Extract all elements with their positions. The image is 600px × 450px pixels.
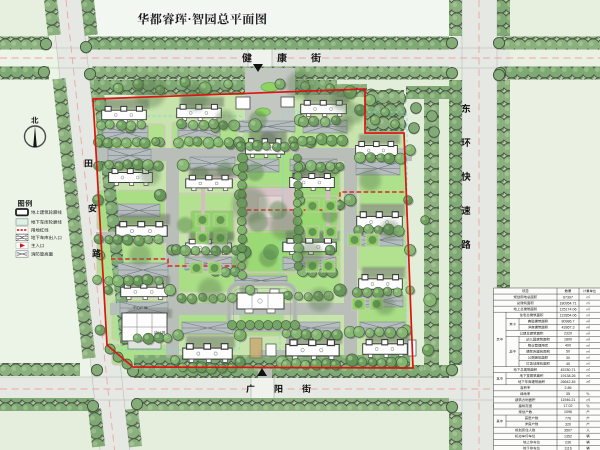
svg-text:50: 50: [566, 350, 570, 354]
svg-text:236: 236: [565, 440, 571, 444]
svg-text:67397: 67397: [563, 295, 573, 299]
svg-text:1800: 1800: [564, 338, 572, 342]
svg-text:1116: 1116: [564, 447, 571, 450]
svg-text:776: 776: [565, 416, 571, 420]
svg-text:80986.7: 80986.7: [562, 319, 575, 323]
svg-text:1096: 1096: [564, 410, 572, 414]
svg-text:35: 35: [566, 392, 570, 396]
svg-text:2.86: 2.86: [565, 386, 572, 390]
svg-text:19138.26: 19138.26: [561, 374, 576, 378]
svg-text:400: 400: [565, 344, 571, 348]
svg-text:2320: 2320: [564, 332, 572, 336]
svg-text:40: 40: [566, 362, 570, 366]
svg-text:26642.45: 26642.45: [561, 380, 576, 384]
svg-text:17.02: 17.02: [564, 404, 573, 408]
svg-text:42867.3: 42867.3: [562, 326, 575, 330]
svg-text:3507: 3507: [564, 428, 572, 432]
svg-text:1352: 1352: [564, 434, 572, 438]
svg-text:30: 30: [566, 356, 570, 360]
svg-text:180954.71: 180954.71: [560, 301, 577, 305]
svg-text:45780.71: 45780.71: [561, 368, 576, 372]
svg-text:122854.06: 122854.06: [560, 313, 577, 317]
svg-text:320: 320: [565, 422, 571, 426]
svg-text:125174.06: 125174.06: [560, 307, 577, 311]
svg-text:11946.21: 11946.21: [561, 398, 576, 402]
